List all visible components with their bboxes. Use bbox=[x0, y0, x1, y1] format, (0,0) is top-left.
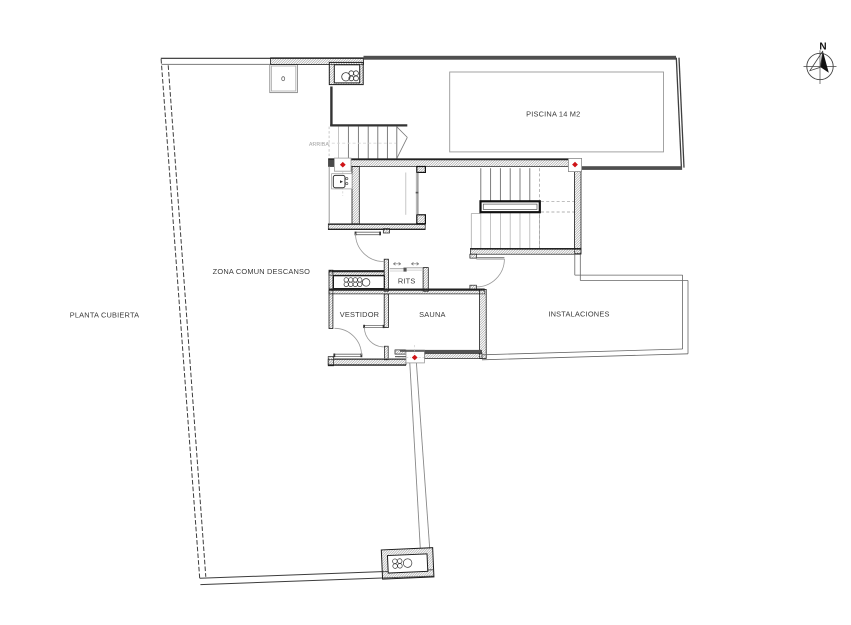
svg-text:VESTIDOR: VESTIDOR bbox=[340, 310, 379, 319]
svg-text:N: N bbox=[819, 42, 826, 53]
svg-text:ZONA COMUN DESCANSO: ZONA COMUN DESCANSO bbox=[213, 267, 310, 276]
svg-text:SAUNA: SAUNA bbox=[419, 310, 445, 319]
svg-text:INSTALACIONES: INSTALACIONES bbox=[548, 310, 609, 319]
svg-text:PLANTA CUBIERTA: PLANTA CUBIERTA bbox=[70, 310, 140, 319]
svg-text:RITS: RITS bbox=[398, 276, 416, 285]
svg-text:ARRIBA: ARRIBA bbox=[309, 142, 329, 148]
svg-text:PISCINA 14 M2: PISCINA 14 M2 bbox=[526, 109, 580, 118]
